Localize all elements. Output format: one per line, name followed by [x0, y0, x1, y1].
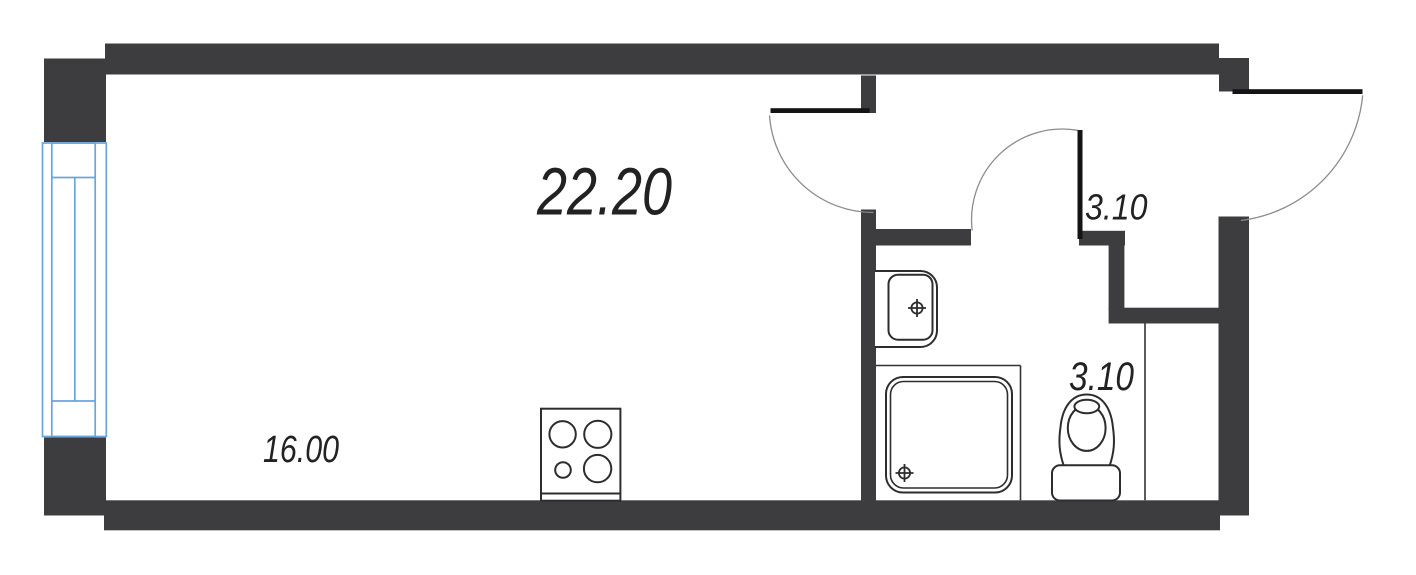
svg-text:16.00: 16.00 — [263, 429, 339, 471]
svg-text:3.10: 3.10 — [1085, 187, 1148, 228]
svg-text:3.10: 3.10 — [1069, 355, 1134, 399]
svg-text:22.20: 22.20 — [536, 155, 672, 230]
